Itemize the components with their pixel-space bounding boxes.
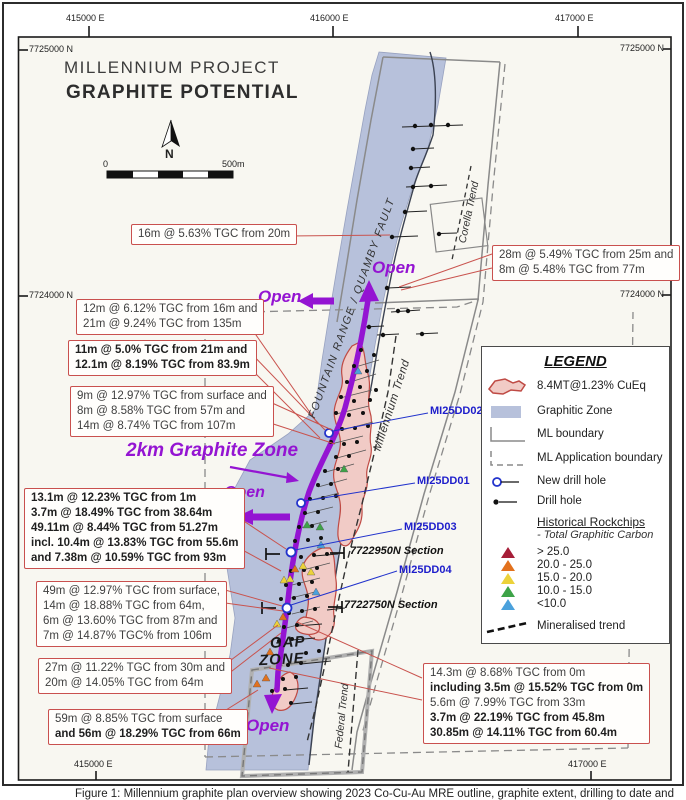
drill-hole-icon <box>485 492 531 512</box>
annotation-line: including 3.5m @ 15.52% TGC from 0m <box>430 681 643 696</box>
annotation-line: 20m @ 14.05% TGC from 64m <box>45 676 225 691</box>
annotation-line: 14.3m @ 8.68% TGC from 0m <box>430 666 643 681</box>
graphite-zone-label: 2km Graphite Zone <box>126 440 298 462</box>
annotation-59m: 59m @ 8.85% TGC from surface and 56m @ 1… <box>48 709 248 745</box>
annotation-line: 3.7m @ 18.49% TGC from 38.64m <box>31 506 238 521</box>
legend-item-label: ML boundary <box>537 428 604 440</box>
legend-item-mre: 8.4MT@1.23% CuEq <box>482 377 669 397</box>
north-label: N <box>165 147 174 161</box>
legend-title: LEGEND <box>482 353 669 370</box>
drill-label-mi25dd02: MI25DD02 <box>430 405 483 417</box>
annotation-line: 21m @ 9.24% TGC from 135m <box>83 317 257 332</box>
annotation-9m: 9m @ 12.97% TGC from surface and 8m @ 8.… <box>70 386 274 437</box>
ml-boundary-icon <box>485 425 531 445</box>
rockchip-class-gt25: > 25.0 <box>482 546 669 559</box>
legend-item-drill-hole: Drill hole <box>482 492 669 512</box>
legend-item-ml-application: ML Application boundary <box>482 449 669 469</box>
grid-label-bottom-417000e: 417000 E <box>568 759 607 769</box>
annotation-line: and 56m @ 18.29% TGC from 66m <box>55 727 241 742</box>
annotation-line: 14m @ 18.88% TGC from 64m, <box>43 599 220 614</box>
rockchips-title: Historical Rockchips <box>537 515 645 529</box>
rockchip-triangle-icon <box>500 572 516 585</box>
drill-label-mi25dd04: MI25DD04 <box>399 564 452 576</box>
drill-label-mi25dd01: MI25DD01 <box>417 475 470 487</box>
legend-item-label: Drill hole <box>537 495 582 507</box>
annotation-line: 8m @ 5.48% TGC from 77m <box>499 263 673 278</box>
figure-caption: Figure 1: Millennium graphite plan overv… <box>75 788 675 800</box>
grid-label-top-415000e: 415000 E <box>66 13 105 23</box>
rockchip-triangle-icon <box>500 546 516 559</box>
grid-label-bottom-415000e: 415000 E <box>74 759 113 769</box>
rockchip-class-20-25: 20.0 - 25.0 <box>482 559 669 572</box>
map-figure-page: FOUNTAIN RANGE / QUAMBY FAULT Millennium… <box>0 0 686 800</box>
mineralised-trend-icon <box>485 617 531 637</box>
rockchip-class-15-20: 15.0 - 20.0 <box>482 572 669 585</box>
grid-label-left-7725000n: 7725000 N <box>29 44 73 54</box>
page-title-line1: MILLENNIUM PROJECT <box>64 58 280 78</box>
grid-label-top-416000e: 416000 E <box>310 13 349 23</box>
scale-end-label: 500m <box>222 159 245 169</box>
legend-item-mineralised-trend: Mineralised trend <box>482 617 669 637</box>
legend-item-label: ML Application boundary <box>537 452 663 464</box>
open-label-west: Open <box>258 287 301 307</box>
annotation-line: 28m @ 5.49% TGC from 25m and <box>499 248 673 263</box>
annotation-line: 11m @ 5.0% TGC from 21m and <box>75 343 250 358</box>
annotation-line: 49m @ 12.97% TGC from surface, <box>43 584 220 599</box>
drill-label-mi25dd03: MI25DD03 <box>404 521 457 533</box>
grid-label-top-417000e: 417000 E <box>555 13 594 23</box>
page-title-line2: GRAPHITE POTENTIAL <box>66 82 299 104</box>
new-drill-hole-icon <box>485 472 531 492</box>
annotation-line: 3.7m @ 22.19% TGC from 45.8m <box>430 711 643 726</box>
annotation-line: 8m @ 8.58% TGC from 57m and <box>77 404 267 419</box>
annotation-line: 13.1m @ 12.23% TGC from 1m <box>31 491 238 506</box>
annotation-16m: 16m @ 5.63% TGC from 20m <box>131 224 297 245</box>
legend-item-ml-boundary: ML boundary <box>482 425 669 445</box>
section-label-7722950n: 7722950N Section <box>350 545 444 557</box>
annotation-line: 49.11m @ 8.44% TGC from 51.27m <box>31 521 238 536</box>
annotation-line: incl. 10.4m @ 13.83% TGC from 55.6m <box>31 536 238 551</box>
section-label-7722750n: 7722750N Section <box>344 599 438 611</box>
annotation-line: 9m @ 12.97% TGC from surface and <box>77 389 267 404</box>
annotation-line: 12.1m @ 8.19% TGC from 83.9m <box>75 358 250 373</box>
annotation-49m: 49m @ 12.97% TGC from surface, 14m @ 18.… <box>36 581 227 647</box>
annotation-line: 59m @ 8.85% TGC from surface <box>55 712 241 727</box>
rockchip-triangle-icon <box>500 585 516 598</box>
graphitic-zone-icon <box>485 402 531 422</box>
rockchip-triangle-icon <box>500 598 516 611</box>
rockchip-class-lt10: <10.0 <box>482 598 669 611</box>
legend-item-label: Graphitic Zone <box>537 405 612 417</box>
annotation-11m: 11m @ 5.0% TGC from 21m and 12.1m @ 8.19… <box>68 340 257 376</box>
grid-label-left-7724000n: 7724000 N <box>29 290 73 300</box>
annotation-line: 30.85m @ 14.11% TGC from 60.4m <box>430 726 643 741</box>
legend-item-label: Mineralised trend <box>537 620 625 632</box>
annotation-line: 5.6m @ 7.99% TGC from 33m <box>430 696 643 711</box>
annotation-line: 14m @ 8.74% TGC from 107m <box>77 419 267 434</box>
grid-label-right-7724000n: 7724000 N <box>620 289 664 299</box>
legend-panel: LEGEND 8.4MT@1.23% CuEq Graphitic Zone M… <box>481 346 670 644</box>
mre-outline-icon <box>485 377 531 397</box>
rockchip-class-10-15: 10.0 - 15.0 <box>482 585 669 598</box>
rockchip-class-label: 20.0 - 25.0 <box>537 559 592 571</box>
rockchip-class-label: 15.0 - 20.0 <box>537 572 592 584</box>
scale-bar <box>107 171 233 178</box>
annotation-27m: 27m @ 11.22% TGC from 30m and 20m @ 14.0… <box>38 658 232 694</box>
open-label-south: Open <box>246 716 289 736</box>
rockchip-class-label: > 25.0 <box>537 546 569 558</box>
annotation-12m: 12m @ 6.12% TGC from 16m and 21m @ 9.24%… <box>76 299 264 335</box>
annotation-line: 16m @ 5.63% TGC from 20m <box>138 227 290 242</box>
legend-item-label: New drill hole <box>537 475 606 487</box>
scale-start-label: 0 <box>103 159 108 169</box>
annotation-13-1m: 13.1m @ 12.23% TGC from 1m 3.7m @ 18.49%… <box>24 488 245 569</box>
annotation-line: 7m @ 14.87% TGC% from 106m <box>43 629 220 644</box>
annotation-28m: 28m @ 5.49% TGC from 25m and 8m @ 5.48% … <box>492 245 680 281</box>
annotation-14-3m: 14.3m @ 8.68% TGC from 0m including 3.5m… <box>423 663 650 744</box>
rockchip-triangle-icon <box>500 559 516 572</box>
grid-label-right-7725000n: 7725000 N <box>620 43 664 53</box>
annotation-line: 12m @ 6.12% TGC from 16m and <box>83 302 257 317</box>
annotation-line: and 7.38m @ 10.59% TGC from 93m <box>31 551 238 566</box>
rockchip-class-label: <10.0 <box>537 598 566 610</box>
legend-item-label: 8.4MT@1.23% CuEq <box>537 380 646 392</box>
legend-item-graphitic-zone: Graphitic Zone <box>482 402 669 422</box>
open-label-north: Open <box>372 258 415 278</box>
rockchip-class-label: 10.0 - 15.0 <box>537 585 592 597</box>
annotation-line: 6m @ 13.60% TGC from 87m and <box>43 614 220 629</box>
rockchips-subtitle: - Total Graphitic Carbon <box>537 529 653 541</box>
gap-zone-label-2: ZONE <box>259 650 305 669</box>
ml-application-boundary-icon <box>485 449 531 469</box>
legend-item-new-drill-hole: New drill hole <box>482 472 669 492</box>
annotation-line: 27m @ 11.22% TGC from 30m and <box>45 661 225 676</box>
